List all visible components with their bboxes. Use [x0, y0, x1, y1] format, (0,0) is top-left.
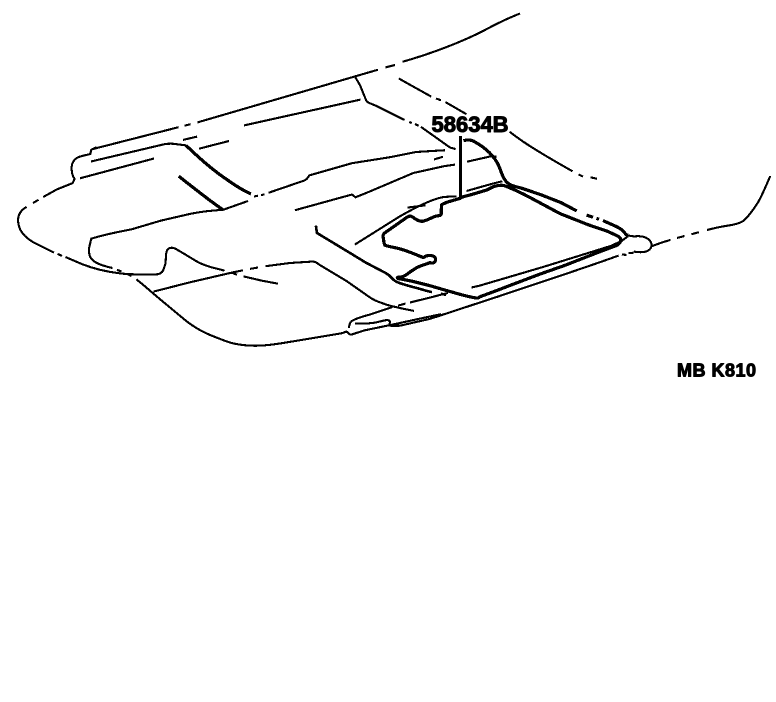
- svg-text:MB: MB: [677, 361, 706, 381]
- svg-text:K810: K810: [712, 361, 757, 381]
- svg-text:58634B: 58634B: [432, 112, 509, 137]
